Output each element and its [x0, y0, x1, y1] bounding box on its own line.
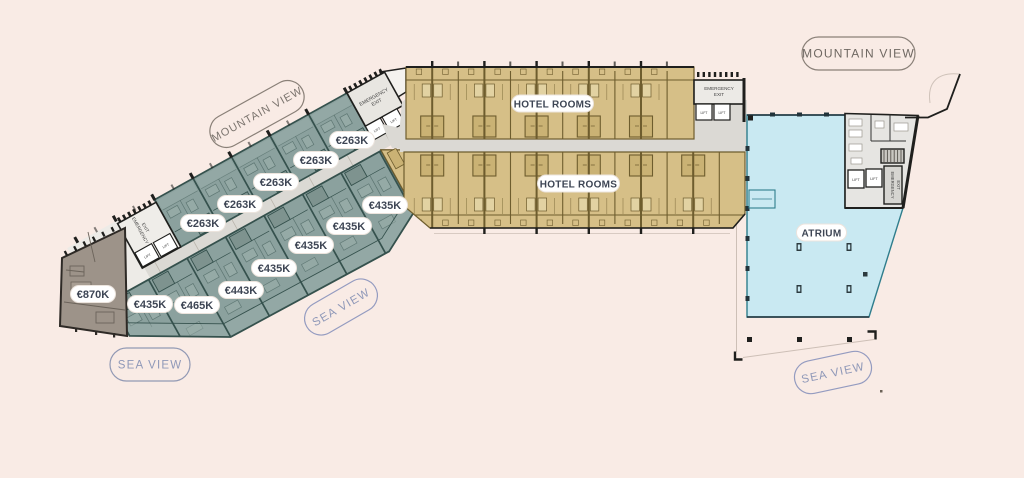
- svg-text:LIFT: LIFT: [870, 177, 878, 181]
- svg-text:€263K: €263K: [300, 155, 332, 167]
- svg-text:EXIT: EXIT: [896, 180, 901, 190]
- svg-text:€435K: €435K: [258, 263, 290, 275]
- svg-text:€435K: €435K: [369, 200, 401, 212]
- svg-text:€435K: €435K: [295, 240, 327, 252]
- svg-text:LIFT: LIFT: [701, 111, 708, 115]
- svg-text:€435K: €435K: [134, 299, 166, 311]
- svg-text:LIFT: LIFT: [719, 111, 726, 115]
- svg-text:€443K: €443K: [225, 285, 257, 297]
- svg-text:HOTEL ROOMS: HOTEL ROOMS: [540, 179, 618, 190]
- svg-text:HOTEL ROOMS: HOTEL ROOMS: [514, 99, 592, 110]
- svg-text:LIFT: LIFT: [852, 178, 860, 182]
- svg-text:€263K: €263K: [336, 135, 368, 147]
- svg-text:EXIT: EXIT: [714, 92, 724, 97]
- svg-text:€263K: €263K: [187, 218, 219, 230]
- svg-text:€263K: €263K: [260, 177, 292, 189]
- svg-text:EMERGENCY: EMERGENCY: [890, 172, 895, 199]
- svg-text:€870K: €870K: [77, 289, 109, 301]
- svg-text:€465K: €465K: [181, 300, 213, 312]
- svg-text:EMERGENCY: EMERGENCY: [704, 86, 734, 91]
- svg-text:SEA VIEW: SEA VIEW: [118, 360, 183, 372]
- svg-text:€435K: €435K: [333, 221, 365, 233]
- svg-text:ATRIUM: ATRIUM: [802, 228, 842, 239]
- svg-text:€263K: €263K: [224, 199, 256, 211]
- svg-text:MOUNTAIN VIEW: MOUNTAIN VIEW: [802, 47, 915, 61]
